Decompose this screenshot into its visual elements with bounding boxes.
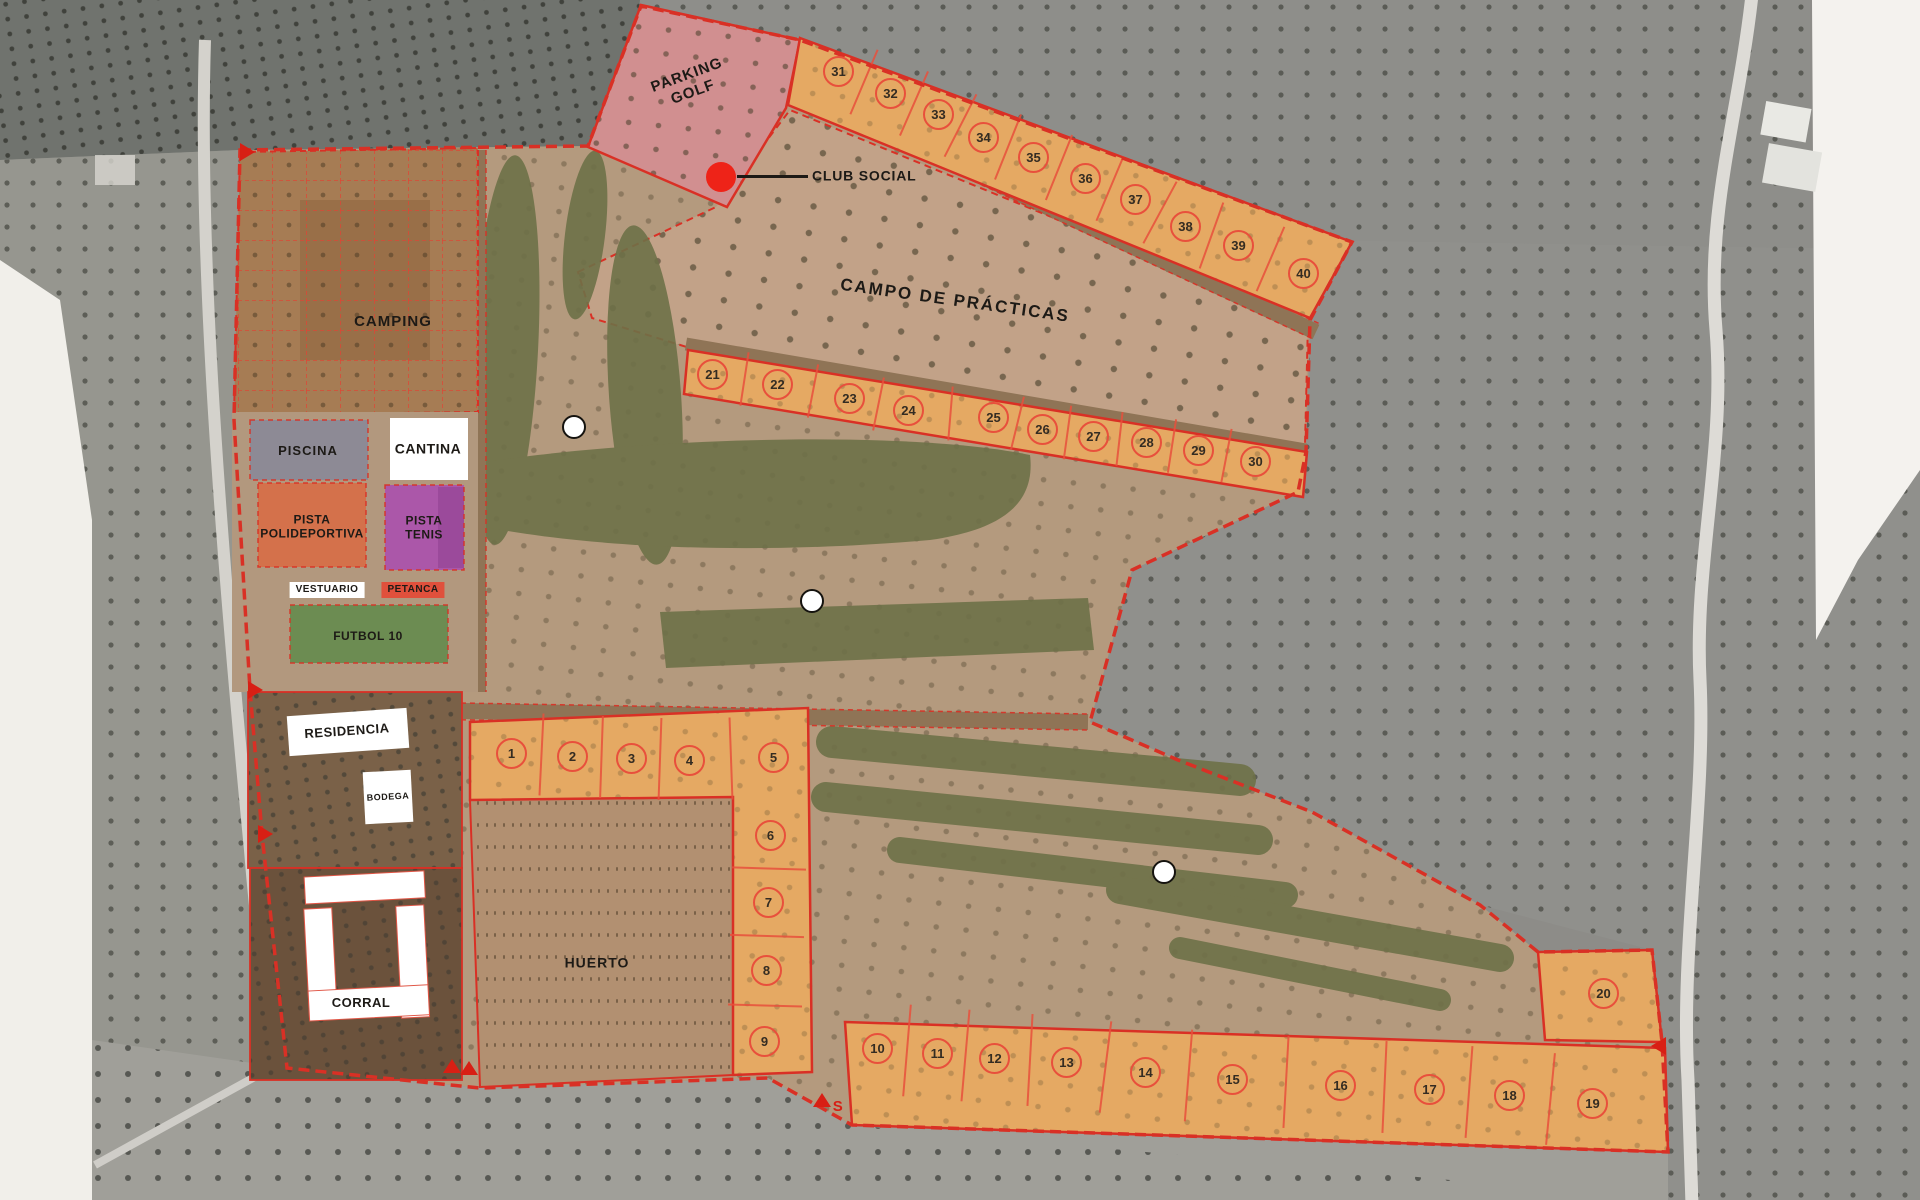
plot-marker: 2 (557, 741, 588, 772)
boundary-arrow-left (1651, 1037, 1666, 1055)
plot-marker: 18 (1494, 1080, 1525, 1111)
boundary-arrow-up (443, 1059, 461, 1073)
plot-marker: 39 (1223, 230, 1254, 261)
plot-marker: 21 (697, 359, 728, 390)
plot-marker: 24 (893, 395, 924, 426)
plot-marker: 19 (1577, 1088, 1608, 1119)
plot-marker: 35 (1018, 142, 1049, 173)
zone-residencia (248, 692, 462, 868)
plot-marker: 15 (1217, 1064, 1248, 1095)
boundary-arrow-up (460, 1061, 478, 1075)
label-tenis-line2: TENIS (405, 528, 443, 542)
plot-marker: 8 (751, 955, 782, 986)
boundary-arrow-up (813, 1093, 831, 1107)
plot-marker: 17 (1414, 1074, 1445, 1105)
plot-marker: 26 (1027, 414, 1058, 445)
plot-marker: 12 (979, 1043, 1010, 1074)
zone-huerto (470, 797, 733, 1087)
plot-marker: 11 (922, 1038, 953, 1069)
label-futbol-10: FUTBOL 10 (333, 629, 403, 643)
label-corral: CORRAL (332, 995, 391, 1011)
plot-marker: 16 (1325, 1070, 1356, 1101)
plot-marker: 25 (978, 402, 1009, 433)
aerial-map-canvas (0, 0, 1920, 1200)
label-pista-polideportiva: PISTA POLIDEPORTIVA (260, 513, 364, 542)
plot-marker: 20 (1588, 978, 1619, 1009)
plot-marker: 13 (1051, 1047, 1082, 1078)
plot-marker: 38 (1170, 211, 1201, 242)
club-social-dot (706, 162, 736, 192)
label-bodega: BODEGA (366, 790, 409, 803)
plot-marker: 36 (1070, 163, 1101, 194)
plot-marker: 4 (674, 745, 705, 776)
golf-green-marker (562, 415, 586, 439)
label-huerto: HUERTO (565, 955, 630, 972)
golf-green-marker (1152, 860, 1176, 884)
boundary-arrow-right (258, 825, 273, 843)
plot-marker: 9 (749, 1026, 780, 1057)
label-club-social: CLUB SOCIAL (812, 168, 916, 185)
plot-marker: 5 (758, 742, 789, 773)
label-petanca: PETANCA (381, 582, 444, 598)
plot-marker: 7 (753, 887, 784, 918)
plot-marker: 10 (862, 1033, 893, 1064)
plot-marker: 14 (1130, 1057, 1161, 1088)
plot-marker: 31 (823, 56, 854, 87)
plot-marker: 37 (1120, 184, 1151, 215)
club-social-leader-line (737, 175, 808, 178)
label-s-marker: S (833, 1098, 844, 1116)
plot-marker: 22 (762, 369, 793, 400)
plot-marker: 1 (496, 738, 527, 769)
plot-marker: 30 (1240, 446, 1271, 477)
plot-marker: 6 (755, 820, 786, 851)
label-pista-tenis: PISTA TENIS (405, 514, 443, 543)
plot-marker: 23 (834, 383, 865, 414)
golf-green-marker (800, 589, 824, 613)
zone-corral (250, 868, 462, 1080)
label-polideportiva-line2: POLIDEPORTIVA (260, 527, 364, 541)
label-tenis-line1: PISTA (405, 514, 443, 528)
plot-marker: 28 (1131, 427, 1162, 458)
plot-marker: 40 (1288, 258, 1319, 289)
label-piscina: PISCINA (278, 443, 338, 459)
plot-marker: 29 (1183, 435, 1214, 466)
plot-marker: 27 (1078, 421, 1109, 452)
plot-marker: 32 (875, 78, 906, 109)
label-cantina: CANTINA (395, 441, 462, 458)
plot-marker: 33 (923, 99, 954, 130)
boundary-arrow-right (240, 143, 255, 161)
label-camping: CAMPING (354, 313, 432, 331)
label-vestuario: VESTUARIO (290, 582, 365, 598)
site-plan-map: CAMPING PARKING GOLF CLUB SOCIAL CAMPO D… (0, 0, 1920, 1200)
boundary-arrow-right (248, 681, 263, 699)
label-polideportiva-line1: PISTA (260, 513, 364, 527)
plot-marker: 3 (616, 743, 647, 774)
plot-marker: 34 (968, 122, 999, 153)
zone-camping (234, 148, 478, 415)
